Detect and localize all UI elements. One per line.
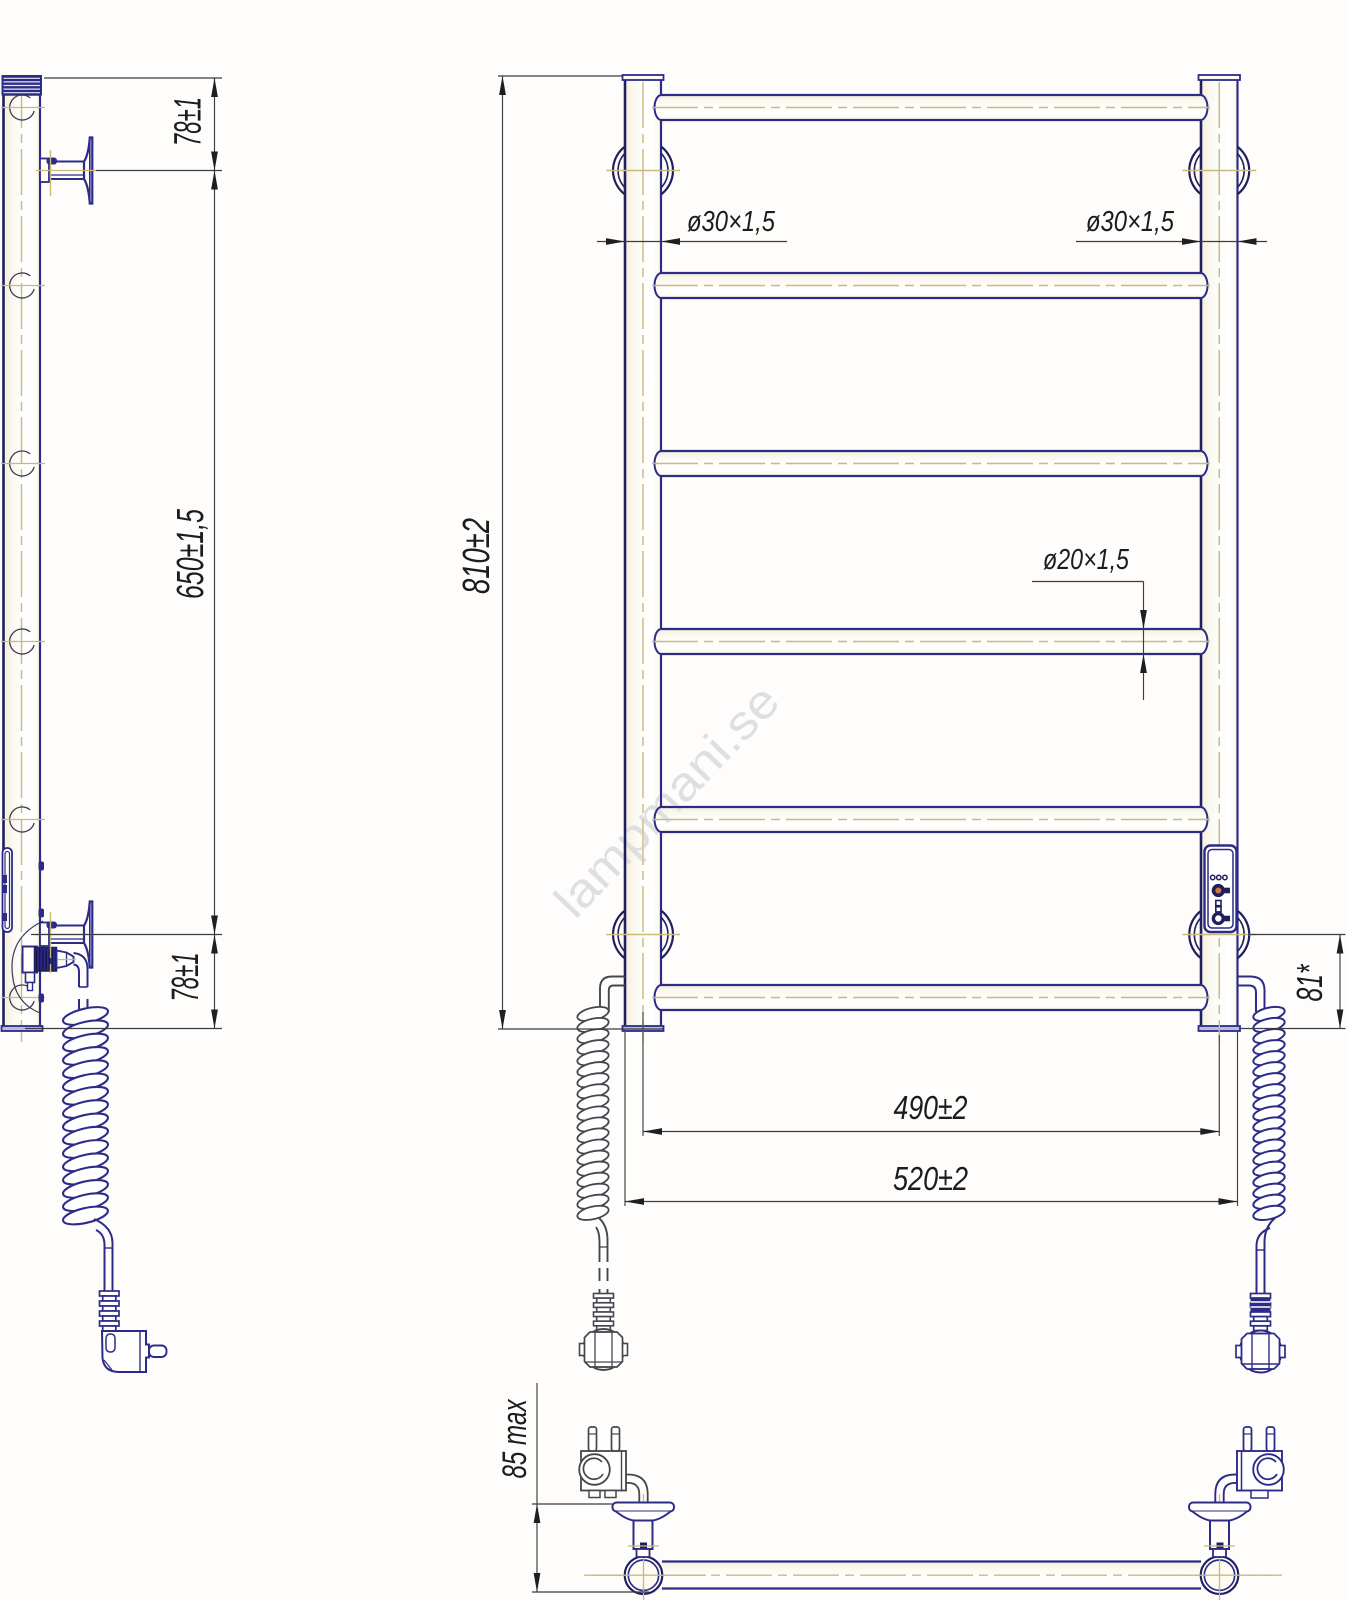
svg-text:ø20×1,5: ø20×1,5 bbox=[1043, 544, 1130, 576]
svg-text:78±1: 78±1 bbox=[168, 97, 210, 146]
svg-text:520±2: 520±2 bbox=[893, 1160, 968, 1197]
svg-text:78±1: 78±1 bbox=[165, 953, 207, 1002]
svg-text:650±1,5: 650±1,5 bbox=[170, 508, 212, 599]
svg-text:81*: 81* bbox=[1289, 964, 1330, 1002]
svg-text:490±2: 490±2 bbox=[894, 1089, 968, 1126]
svg-text:ø30×1,5: ø30×1,5 bbox=[1086, 206, 1175, 238]
svg-text:85 max: 85 max bbox=[496, 1399, 534, 1479]
svg-text:ø30×1,5: ø30×1,5 bbox=[687, 206, 776, 238]
svg-text:810±2: 810±2 bbox=[456, 518, 498, 594]
